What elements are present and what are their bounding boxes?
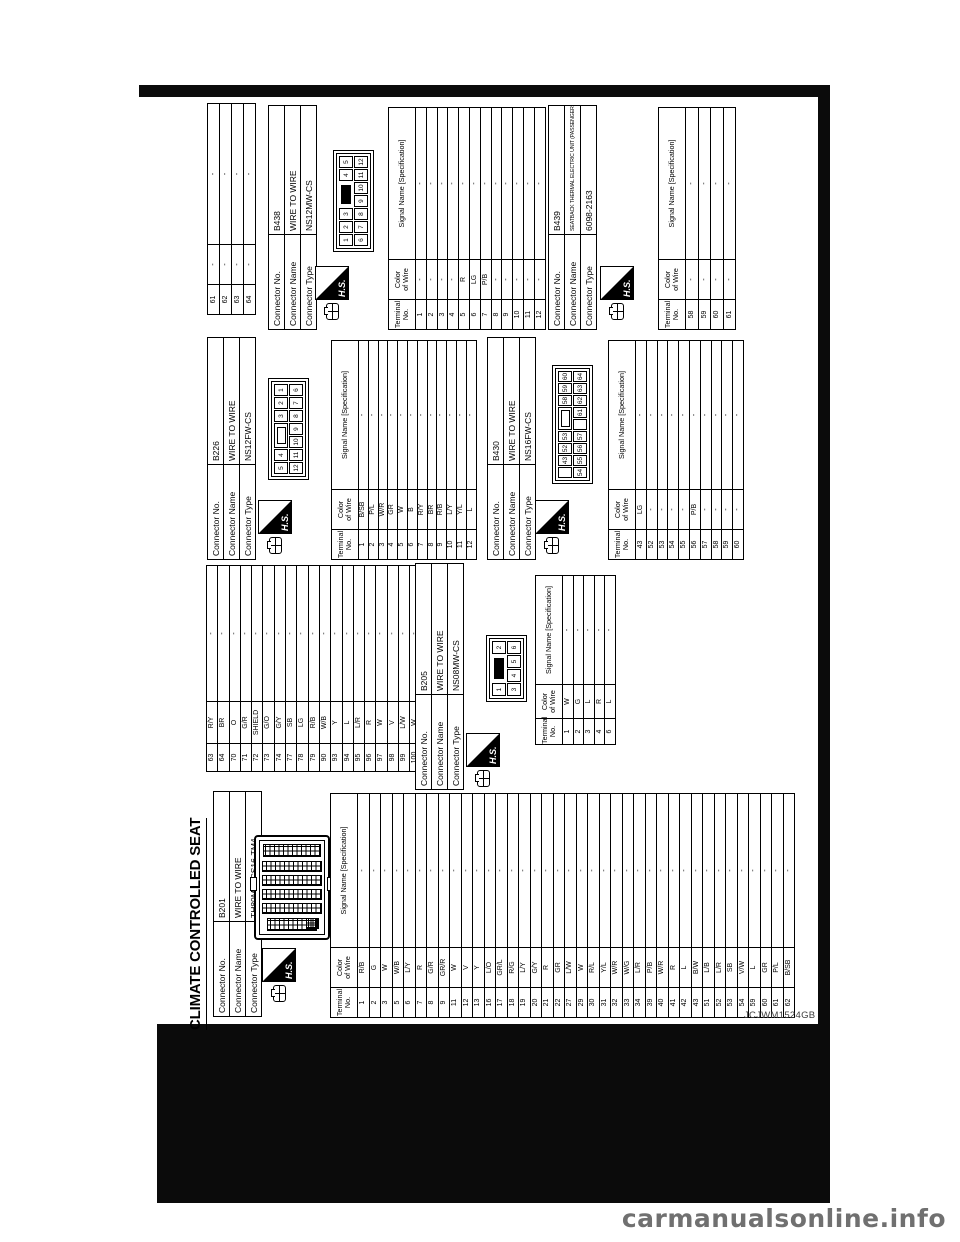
terminal-row: 6L-: [605, 576, 616, 745]
wire-color-cell: L/O: [484, 948, 496, 988]
wire-color-cell: R/L: [588, 948, 600, 988]
info-row: Connector No.B439: [549, 106, 565, 330]
signal-name-cell: -: [399, 566, 410, 702]
signal-name-cell: -: [480, 108, 491, 260]
terminal-no-cell: 11: [523, 300, 534, 330]
terminal-row: 7R-: [415, 794, 427, 1018]
wire-color-cell: P/L: [368, 490, 378, 530]
signal-name-cell: -: [636, 341, 647, 490]
signal-name-cell: -: [252, 566, 263, 702]
wire-color-cell: L: [466, 490, 476, 530]
signal-name-cell: -: [646, 341, 657, 490]
terminal-row: 5W-: [398, 341, 408, 560]
pin-cell: 2: [492, 641, 506, 654]
pin-cell: 53: [558, 431, 572, 442]
connector-type-value: NS12FW-CS: [240, 338, 256, 465]
connector-no-label: Connector No.: [208, 465, 224, 560]
terminal-row: 11--: [523, 108, 534, 330]
signal-name-cell: -: [297, 566, 308, 702]
signal-name-cell: -: [491, 108, 502, 260]
signal-name-cell: -: [657, 341, 668, 490]
wire-color-header: Colorof Wire: [331, 948, 358, 988]
signal-name-cell: -: [378, 341, 388, 490]
terminal-row: 29W-: [576, 794, 588, 1018]
signal-name-cell: -: [502, 108, 513, 260]
terminal-no-cell: 6: [404, 988, 416, 1018]
wire-color-cell: G: [369, 948, 381, 988]
signal-name-cell: -: [437, 108, 448, 260]
connector-no-value: B439: [549, 106, 565, 235]
signal-name-cell: -: [438, 794, 450, 948]
signal-name-cell: -: [387, 566, 398, 702]
wire-color-cell: -: [722, 490, 733, 530]
pin-cell: 8: [289, 410, 303, 422]
terminal-row: 6L/Y-: [404, 794, 416, 1018]
connector-type-label: Connector Type: [520, 465, 536, 560]
pin-cell: 60: [558, 371, 572, 382]
signal-name-cell: -: [459, 108, 470, 260]
connector-no-value: B201: [214, 792, 230, 922]
hs-label: H.S.: [622, 279, 632, 297]
wire-color-cell: L/W: [399, 702, 410, 744]
connector-rear-view-icon: [326, 303, 339, 320]
signal-name-cell: -: [686, 108, 699, 260]
wire-color-cell: L: [584, 685, 595, 719]
pin-cell: 6: [354, 234, 368, 246]
terminal-row: 4R-: [594, 576, 605, 745]
terminal-row: 8G/R-: [427, 794, 439, 1018]
signal-name-cell: -: [208, 104, 220, 245]
wire-color-cell: P/B: [689, 490, 700, 530]
wire-color-cell: SB: [286, 702, 297, 744]
wire-color-cell: L/Y: [519, 948, 531, 988]
wire-color-cell: L/R: [353, 702, 364, 744]
terminal-row: 55--: [679, 341, 690, 560]
signal-name-cell: -: [680, 794, 692, 948]
signal-name-cell: -: [353, 566, 364, 702]
terminal-no-cell: 12: [534, 300, 545, 330]
terminal-no-cell: 73: [263, 744, 274, 772]
b438-info-table: Connector No.B438 Connector NameWIRE TO …: [268, 105, 317, 330]
wire-color-cell: W/B: [319, 702, 330, 744]
signal-name-cell: -: [634, 794, 646, 948]
terminal-row: 78LG-: [297, 566, 308, 772]
signal-name-cell: -: [407, 341, 417, 490]
harness-side-view-icon: H.S.: [258, 500, 292, 554]
signal-name-cell: -: [588, 794, 600, 948]
signal-name-cell: -: [714, 794, 726, 948]
terminal-row: 98V-: [387, 566, 398, 772]
terminal-row: 39P/B-: [645, 794, 657, 1018]
pin-cell: 9: [354, 195, 368, 207]
signal-name-cell: -: [342, 566, 353, 702]
signal-name-header: Signal Name [Specification]: [332, 341, 359, 490]
terminal-row: 33W/G-: [622, 794, 634, 1018]
signal-name-cell: -: [286, 566, 297, 702]
hs-symbol: H.S.: [535, 500, 569, 534]
terminal-row: 59--: [698, 108, 711, 330]
terminal-no-cell: 97: [376, 744, 387, 772]
hs-label: H.S.: [488, 746, 498, 764]
terminal-no-cell: 9: [437, 530, 447, 560]
terminal-no-cell: 70: [229, 744, 240, 772]
terminal-row: 1--: [416, 108, 427, 330]
signal-name-cell: -: [783, 794, 795, 948]
signal-name-cell: -: [220, 104, 232, 245]
terminal-no-cell: 59: [698, 300, 711, 330]
signal-name-header: Signal Name [Specification]: [331, 794, 358, 948]
wire-color-cell: -: [502, 260, 513, 300]
signal-name-cell: -: [232, 104, 244, 245]
pin-cell: 64: [573, 371, 587, 382]
pin-cell: 9: [289, 423, 303, 435]
connector-name-label: Connector Name: [230, 922, 246, 1017]
wire-color-cell: R/B: [308, 702, 319, 744]
wire-color-cell: V/W: [737, 948, 749, 988]
terminal-no-cell: 13: [473, 988, 485, 1018]
wire-color-cell: SB: [726, 948, 738, 988]
terminal-row: 53--: [657, 341, 668, 560]
wire-color-header: Colorof Wire: [609, 490, 636, 530]
signal-name-cell: -: [733, 341, 744, 490]
signal-name-cell: -: [726, 794, 738, 948]
terminal-no-cell: 2: [573, 719, 584, 745]
terminal-header-row: TerminalNo. Colorof Wire Signal Name [Sp…: [659, 108, 686, 330]
signal-name-cell: -: [308, 566, 319, 702]
connector-type-value: NS16FW-CS: [520, 338, 536, 465]
connector-name-label: Connector Name: [565, 235, 581, 330]
wire-color-cell: R/G: [507, 948, 519, 988]
terminal-row: 62--: [220, 104, 232, 315]
wire-color-cell: R/B: [358, 948, 370, 988]
terminal-row: 2--: [426, 108, 437, 330]
connector-diagram-b205: 12 3456: [486, 635, 527, 702]
signal-name-cell: -: [392, 794, 404, 948]
signal-name-cell: -: [611, 794, 623, 948]
terminal-row: 61--: [723, 108, 736, 330]
wire-color-cell: B: [407, 490, 417, 530]
info-row: Connector No.B438: [269, 106, 285, 330]
terminal-no-cell: 11: [450, 988, 462, 1018]
terminal-no-header: TerminalNo.: [536, 719, 563, 745]
wire-color-cell: R/B: [437, 490, 447, 530]
hs-symbol: H.S.: [600, 266, 634, 300]
wire-color-cell: W/R: [611, 948, 623, 988]
terminal-no-cell: 77: [286, 744, 297, 772]
info-row: Connector NameSEATBACK THERMAL ELECTRIC …: [565, 106, 581, 330]
wire-color-cell: L/B: [703, 948, 715, 988]
signal-name-cell: -: [456, 341, 466, 490]
wire-color-cell: P/B: [645, 948, 657, 988]
terminal-row: 1B/SB-: [359, 341, 369, 560]
pin-cell: 59: [558, 383, 572, 394]
wire-color-cell: -: [646, 490, 657, 530]
signal-name-cell: -: [605, 576, 616, 685]
wire-color-cell: W/G: [622, 948, 634, 988]
wire-color-cell: -: [711, 260, 724, 300]
wire-color-cell: L/W: [565, 948, 577, 988]
terminal-no-cell: 58: [711, 530, 722, 560]
terminal-row: 2G-: [369, 794, 381, 1018]
terminal-row: 90W/B-: [319, 566, 330, 772]
terminal-no-cell: 27: [565, 988, 577, 1018]
terminal-no-cell: 99: [399, 744, 410, 772]
terminal-row: 95L/R-: [353, 566, 364, 772]
terminal-row: 11W-: [450, 794, 462, 1018]
terminal-no-cell: 55: [679, 530, 690, 560]
connector-rear-view-icon: [546, 537, 559, 554]
signal-name-cell: -: [404, 794, 416, 948]
signal-name-cell: -: [427, 794, 439, 948]
pin-cell: 62: [573, 395, 587, 406]
wire-color-cell: LG: [469, 260, 480, 300]
terminal-row: 61--: [208, 104, 220, 315]
terminal-row: 54--: [668, 341, 679, 560]
wire-color-cell: R: [668, 948, 680, 988]
signal-name-cell: -: [657, 794, 669, 948]
terminal-no-cell: 53: [657, 530, 668, 560]
terminal-no-cell: 43: [691, 988, 703, 1018]
wire-color-cell: -: [523, 260, 534, 300]
terminal-row: 12L-: [466, 341, 476, 560]
signal-name-cell: -: [722, 341, 733, 490]
pin-cell: 6: [289, 384, 303, 396]
terminal-row: 5W/B-: [392, 794, 404, 1018]
connector-type-value: 6098-2163: [581, 106, 597, 235]
terminal-row: 42L-: [680, 794, 692, 1018]
terminal-no-cell: 58: [686, 300, 699, 330]
pin-cell: 4: [339, 169, 353, 181]
terminal-no-cell: 1: [563, 719, 574, 745]
connector-rear-view-icon: [611, 303, 624, 320]
terminal-no-cell: 2: [426, 300, 437, 330]
harness-side-view-icon: H.S.: [466, 733, 500, 787]
b205-terminal-table: TerminalNo. Colorof Wire Signal Name [Sp…: [535, 575, 616, 745]
signal-name-cell: -: [359, 341, 369, 490]
terminal-no-cell: 4: [594, 719, 605, 745]
terminal-no-cell: 31: [599, 988, 611, 1018]
signal-name-cell: -: [668, 794, 680, 948]
terminal-no-header: TerminalNo.: [609, 530, 636, 560]
wire-color-cell: Y/L: [599, 948, 611, 988]
terminal-no-cell: 40: [657, 988, 669, 1018]
connector-diagram-b201: [254, 835, 330, 940]
signal-name-cell: -: [398, 341, 408, 490]
terminal-row: 9--: [502, 108, 513, 330]
terminal-no-cell: 64: [218, 744, 229, 772]
connector-name-value: WIRE TO WIRE: [230, 792, 246, 922]
wire-color-cell: -: [679, 490, 690, 530]
wire-color-cell: -: [711, 490, 722, 530]
terminal-row: 20G/Y-: [530, 794, 542, 1018]
signal-name-cell: -: [416, 108, 427, 260]
connector-latch: [274, 423, 288, 448]
connector-diagram-b438: 12345 6789101112: [333, 150, 374, 252]
terminal-row: 96R-: [365, 566, 376, 772]
terminal-no-cell: 63: [207, 744, 218, 772]
terminal-no-cell: 4: [448, 300, 459, 330]
terminal-row: 32W/R-: [611, 794, 623, 1018]
terminal-no-cell: 39: [645, 988, 657, 1018]
signal-name-cell: -: [553, 794, 565, 948]
terminal-row: 43B/W-: [691, 794, 703, 1018]
terminal-no-cell: 5: [459, 300, 470, 330]
terminal-no-cell: 10: [447, 530, 457, 560]
wire-color-cell: -: [698, 260, 711, 300]
wire-color-cell: R/Y: [207, 702, 218, 744]
terminal-no-cell: 7: [417, 530, 427, 560]
terminal-row: 31Y/L-: [599, 794, 611, 1018]
info-row: Connector No.B226: [208, 338, 224, 560]
wire-color-cell: L/R: [714, 948, 726, 988]
terminal-no-cell: 93: [331, 744, 342, 772]
terminal-no-cell: 10: [513, 300, 524, 330]
terminal-no-cell: 71: [240, 744, 251, 772]
info-row: Connector TypeNS16FW-CS: [520, 338, 536, 560]
signal-name-cell: -: [448, 108, 459, 260]
wire-color-cell: G/Y: [274, 702, 285, 744]
signal-name-cell: -: [369, 794, 381, 948]
terminal-row: 1R/B-: [358, 794, 370, 1018]
terminal-row: 62B/SB-: [783, 794, 795, 1018]
terminal-row: 8BR-: [427, 341, 437, 560]
signal-name-cell: -: [365, 566, 376, 702]
pin-strip: [262, 903, 322, 914]
terminal-row: 60--: [733, 341, 744, 560]
terminal-no-cell: 12: [461, 988, 473, 1018]
terminal-no-cell: 94: [342, 744, 353, 772]
wire-color-cell: G/Y: [530, 948, 542, 988]
signal-name-cell: -: [426, 108, 437, 260]
info-row: Connector NameWIRE TO WIRE: [504, 338, 520, 560]
rotated-page: CLIMATE CONTROLLED SEAT Connector No.B20…: [0, 0, 960, 1242]
terminal-row: 7P/B-: [480, 108, 491, 330]
wire-color-cell: W/R: [657, 948, 669, 988]
pin-cell: 61: [573, 407, 587, 418]
b201-terminal-table: TerminalNo. Colorof Wire Signal Name [Sp…: [330, 793, 795, 1018]
terminal-row: 9R/B-: [437, 341, 447, 560]
signal-name-cell: -: [700, 341, 711, 490]
pin-cell: 4: [507, 669, 521, 682]
wire-color-cell: -: [491, 260, 502, 300]
wire-color-cell: -: [448, 260, 459, 300]
connector-rear-view-icon: [477, 770, 490, 787]
pin-cell: 7: [289, 397, 303, 409]
wire-color-cell: -: [416, 260, 427, 300]
terminal-no-header: TerminalNo.: [332, 530, 359, 560]
terminal-row: 72SHIELD-: [252, 566, 263, 772]
hs-label: H.S.: [557, 513, 567, 531]
terminal-no-cell: 96: [365, 744, 376, 772]
signal-name-cell: -: [534, 108, 545, 260]
signal-name-cell: -: [473, 794, 485, 948]
pin-strip: [262, 861, 322, 872]
blank-cavity: [558, 467, 572, 478]
wire-color-cell: L: [749, 948, 761, 988]
signal-name-cell: -: [319, 566, 330, 702]
terminal-row: 19L/Y-: [519, 794, 531, 1018]
hs-label: H.S.: [284, 961, 294, 979]
terminal-no-cell: 6: [469, 300, 480, 330]
connector-no-value: B205: [416, 564, 432, 695]
signal-name-cell: -: [415, 794, 427, 948]
terminal-header-row: TerminalNo. Colorof Wire Signal Name [Sp…: [609, 341, 636, 560]
wire-color-cell: R: [542, 948, 554, 988]
terminal-no-cell: 3: [437, 300, 448, 330]
terminal-row: 16L/O-: [484, 794, 496, 1018]
terminal-no-cell: 7: [480, 300, 491, 330]
connector-face: [259, 840, 325, 935]
pin-cell: 2: [274, 397, 288, 409]
pin-cell: 12: [289, 462, 303, 474]
terminal-no-cell: 5: [398, 530, 408, 560]
terminal-no-cell: 4: [388, 530, 398, 560]
wire-color-header: Colorof Wire: [536, 685, 563, 719]
terminal-row: 21R-: [542, 794, 554, 1018]
signal-name-cell: -: [737, 794, 749, 948]
terminal-no-cell: 56: [689, 530, 700, 560]
signal-name-cell: -: [530, 794, 542, 948]
terminal-row: 77SB-: [286, 566, 297, 772]
terminal-no-cell: 1: [358, 988, 370, 1018]
terminal-no-cell: 20: [530, 988, 542, 1018]
terminal-row: 12--: [534, 108, 545, 330]
terminal-no-cell: 8: [427, 988, 439, 1018]
terminal-row: 18R/G-: [507, 794, 519, 1018]
terminal-row: 56P/B-: [689, 341, 700, 560]
scan-edge-right: [818, 85, 830, 1030]
terminal-row: 97W-: [376, 566, 387, 772]
wire-color-cell: B/SB: [783, 948, 795, 988]
terminal-row: 58--: [711, 341, 722, 560]
wire-color-cell: -: [534, 260, 545, 300]
signal-name-cell: -: [668, 341, 679, 490]
pin-cell: 6: [507, 641, 521, 654]
terminal-no-cell: 9: [502, 300, 513, 330]
pin-cell: 56: [573, 443, 587, 454]
signal-name-cell: -: [711, 341, 722, 490]
wire-color-cell: G/R: [240, 702, 251, 744]
pin-group-small: [306, 918, 319, 929]
signal-name-cell: -: [711, 108, 724, 260]
wire-color-cell: G/O: [263, 702, 274, 744]
terminal-no-cell: 30: [588, 988, 600, 1018]
terminal-header-row: TerminalNo. Colorof Wire Signal Name [Sp…: [331, 794, 358, 1018]
terminal-row: 30R/L-: [588, 794, 600, 1018]
connector-type-label: Connector Type: [240, 465, 256, 560]
signal-name-cell: -: [381, 794, 393, 948]
terminal-row: 6LG-: [469, 108, 480, 330]
blank-cavity: [573, 419, 587, 430]
terminal-no-cell: 78: [297, 744, 308, 772]
signal-name-cell: -: [584, 576, 595, 685]
terminal-row: 17GR/L-: [496, 794, 508, 1018]
connector-no-label: Connector No.: [214, 922, 230, 1017]
wire-color-cell: R: [415, 948, 427, 988]
terminal-row: 6B-: [407, 341, 417, 560]
signal-name-cell: -: [368, 341, 378, 490]
terminal-no-cell: 6: [407, 530, 417, 560]
connector-name-value: WIRE TO WIRE: [504, 338, 520, 465]
signal-name-cell: -: [513, 108, 524, 260]
terminal-row: 7R/Y-: [417, 341, 427, 560]
wire-color-cell: W/B: [392, 948, 404, 988]
signal-name-cell: -: [263, 566, 274, 702]
connector-latch: [558, 407, 572, 430]
wire-color-cell: -: [700, 490, 711, 530]
info-row: Connector No.B205: [416, 564, 432, 790]
wire-color-cell: -: [437, 260, 448, 300]
